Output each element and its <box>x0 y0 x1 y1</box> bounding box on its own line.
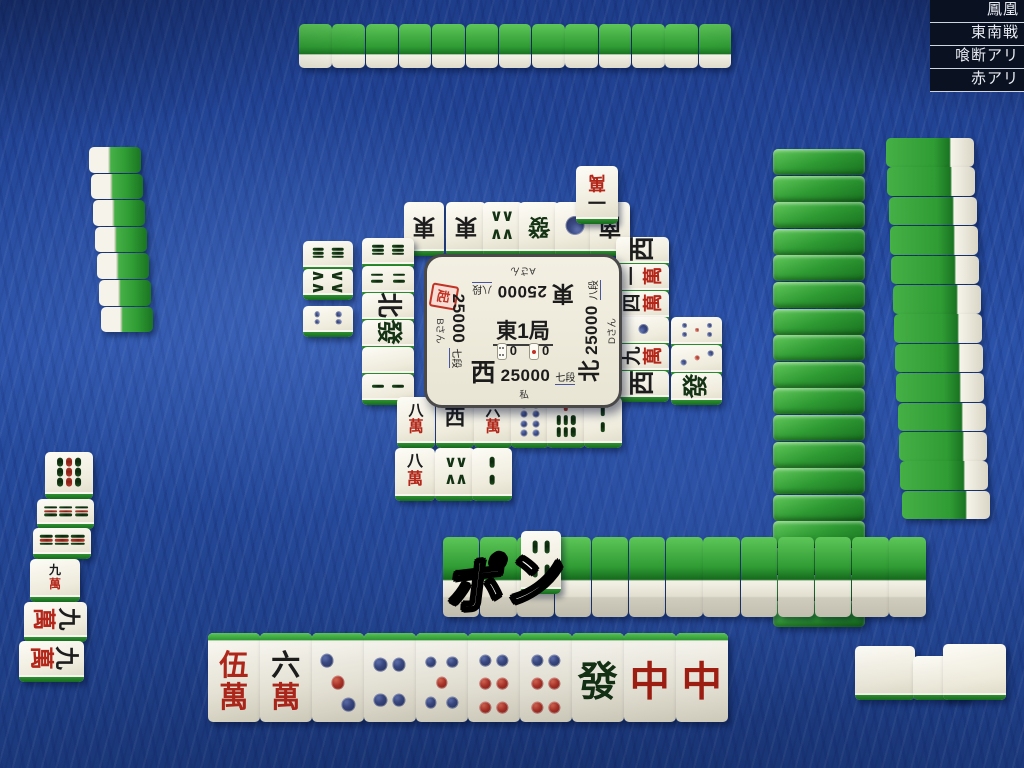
left-discard-tile-6s <box>362 238 414 269</box>
top-player-hand-tile <box>399 24 432 68</box>
top-player-hand-tile <box>366 24 399 68</box>
left-meld-tile-9s <box>37 499 94 529</box>
right-player-hand-tile <box>886 138 974 167</box>
top-discard-tile-1m: 一萬 <box>576 166 618 224</box>
left-meld-tile-9m: 九萬 <box>30 559 80 602</box>
left-player-hand-tile <box>99 280 151 306</box>
right-rank: 八段 <box>585 280 601 300</box>
right-wall-tile <box>773 229 865 255</box>
top-player-hand-tile <box>632 24 665 68</box>
left-meld-tile-9s <box>33 528 91 559</box>
top-discard-tile-F: 發 <box>519 202 559 256</box>
bottom-wall-tile <box>666 537 702 617</box>
right-player-hand-tile <box>899 432 987 461</box>
top-discard-tile-8s: ∨∨∧∧ <box>483 202 523 256</box>
right-player-hand-tile <box>902 491 990 520</box>
right-wind: 北 <box>572 360 604 382</box>
score-panel: 起 東1局 0 0 西 25000 七段 私 東 25000 八段 Aさん 25… <box>424 254 622 408</box>
right-score-block: 北 25000 八段 Dさん <box>572 266 618 396</box>
hand-tile-F[interactable]: 發 <box>572 633 624 722</box>
right-player-hand-tile <box>887 167 975 196</box>
hand-tile-C[interactable]: 中 <box>624 633 676 722</box>
right-player-hand-tile <box>894 314 982 343</box>
left-player-hand-tile <box>91 174 143 200</box>
right-wall-tile <box>773 149 865 175</box>
right-wall-tile <box>773 309 865 335</box>
hand-tile-0m[interactable]: 伍萬 <box>208 633 260 722</box>
top-player-hand-tile <box>599 24 632 68</box>
top-player-hand-tile <box>665 24 698 68</box>
left-discard-tile-6s <box>303 241 353 272</box>
left-meld-tile-9s <box>45 452 93 499</box>
hand-tile-3p[interactable] <box>312 633 364 722</box>
right-wall-tile <box>773 388 865 414</box>
right-wall-tile <box>773 282 865 308</box>
right-player-hand-tile <box>891 256 979 285</box>
right-discard-tile-F: 發 <box>671 373 722 405</box>
mahjong-table: { "rules_panel": { "room": "鳳凰", "game_t… <box>0 0 1024 768</box>
self-score: 25000 <box>501 366 551 386</box>
bottom-discard-tile-2s <box>472 448 512 501</box>
top-wind: 東 <box>552 279 574 311</box>
right-player-hand-tile <box>896 373 984 402</box>
bottom-wall-tile <box>629 537 665 617</box>
top-rank: 八段 <box>472 282 492 298</box>
top-score: 25000 <box>497 281 547 301</box>
left-rank: 七段 <box>449 348 465 368</box>
self-wind: 西 <box>471 353 496 389</box>
right-wall-tile <box>773 415 865 441</box>
right-player-hand-tile <box>898 403 986 432</box>
aka-rule-label: 赤アリ <box>930 69 1024 92</box>
bottom-wall-tile <box>889 537 925 617</box>
right-wall-tile <box>773 255 865 281</box>
bottom-meld-tile-P <box>943 644 1006 700</box>
left-score: 25000 <box>448 294 468 344</box>
right-wall-tile <box>773 176 865 202</box>
game-type-label: 東南戦 <box>930 23 1024 46</box>
hand-tile-5p[interactable] <box>416 633 468 722</box>
left-discard-tile-4p <box>303 306 353 337</box>
bottom-wall-tile <box>703 537 739 617</box>
self-name: 私 <box>519 387 529 401</box>
bottom-discard-tile-8m: 八萬 <box>395 448 435 501</box>
bottom-wall-tile <box>741 537 777 617</box>
call-announcement: ポン <box>439 531 564 626</box>
left-player-hand-tile <box>101 307 153 333</box>
right-score: 25000 <box>582 305 602 355</box>
right-player-hand-tile <box>893 285 981 314</box>
right-name: Dさん <box>604 318 618 344</box>
top-name: Aさん <box>510 265 535 279</box>
left-player-hand-tile <box>93 200 145 226</box>
top-player-hand-tile <box>565 24 598 68</box>
bottom-wall-tile <box>852 537 888 617</box>
right-player-hand-tile <box>895 344 983 373</box>
right-wall-tile <box>773 202 865 228</box>
left-player-hand-tile <box>95 227 147 253</box>
right-wall-tile <box>773 442 865 468</box>
right-player-hand-tile <box>900 461 988 490</box>
bottom-discard-tile-8m: 八萬 <box>397 397 435 448</box>
right-wall-tile <box>773 468 865 494</box>
right-discard-tile-W: 西 <box>616 371 669 402</box>
top-player-hand-tile <box>499 24 532 68</box>
bottom-wall-tile <box>815 537 851 617</box>
bottom-meld-tile-P <box>855 646 915 700</box>
right-wall-tile <box>773 362 865 388</box>
left-name: Bさん <box>434 318 448 343</box>
right-player-hand-tile <box>889 197 977 226</box>
right-wall-tile <box>773 335 865 361</box>
left-score-block: 25000 七段 Bさん <box>434 266 468 396</box>
left-player-hand-tile <box>89 147 141 173</box>
hand-tile-C[interactable]: 中 <box>676 633 728 722</box>
bottom-wall-tile <box>592 537 628 617</box>
top-discard-tile-E: 東 <box>446 202 486 256</box>
top-player-hand-tile <box>432 24 465 68</box>
left-meld-tile-9m: 九萬 <box>24 602 87 642</box>
room-label: 鳳凰 <box>930 0 1024 23</box>
bottom-discard-tile-8s: ∨∨∧∧ <box>435 448 475 501</box>
top-player-hand-tile <box>532 24 565 68</box>
rules-panel: 鳳凰 東南戦 喰断アリ 赤アリ <box>930 0 1024 92</box>
bottom-wall-tile <box>778 537 814 617</box>
left-meld-tile-9m: 九萬 <box>19 641 84 682</box>
top-player-hand-tile <box>699 24 732 68</box>
hand-tile-4p[interactable] <box>364 633 416 722</box>
hand-tile-6m[interactable]: 六萬 <box>260 633 312 722</box>
right-wall-tile <box>773 495 865 521</box>
hand-tile-6p[interactable] <box>468 633 520 722</box>
hand-tile-6p[interactable] <box>520 633 572 722</box>
top-player-hand-tile <box>332 24 365 68</box>
top-player-hand-tile <box>466 24 499 68</box>
top-player-hand-tile <box>299 24 332 68</box>
kuitan-rule-label: 喰断アリ <box>930 46 1024 69</box>
left-player-hand-tile <box>97 253 149 279</box>
right-player-hand-tile <box>890 226 978 255</box>
left-discard-tile-8s: ∨∨∧∧ <box>303 269 353 300</box>
